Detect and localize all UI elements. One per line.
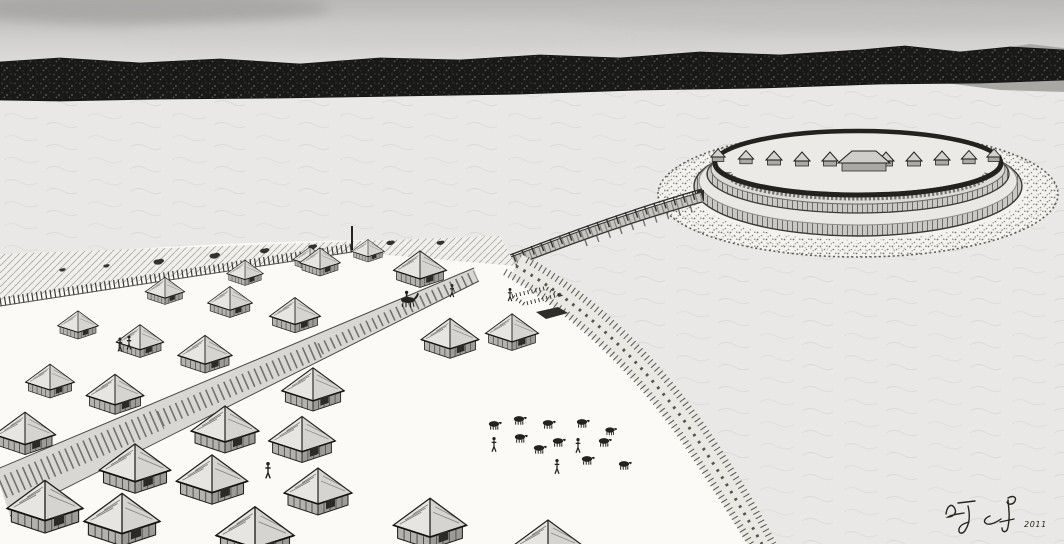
signature-year: 2011 bbox=[1024, 520, 1047, 529]
cloud-shading bbox=[580, 7, 1060, 29]
reconstruction-drawing: 2011 bbox=[0, 0, 1064, 544]
cloud-shading bbox=[130, 22, 730, 46]
ring-fortress bbox=[658, 131, 1058, 257]
illustration-canvas: 2011 bbox=[0, 0, 1064, 544]
